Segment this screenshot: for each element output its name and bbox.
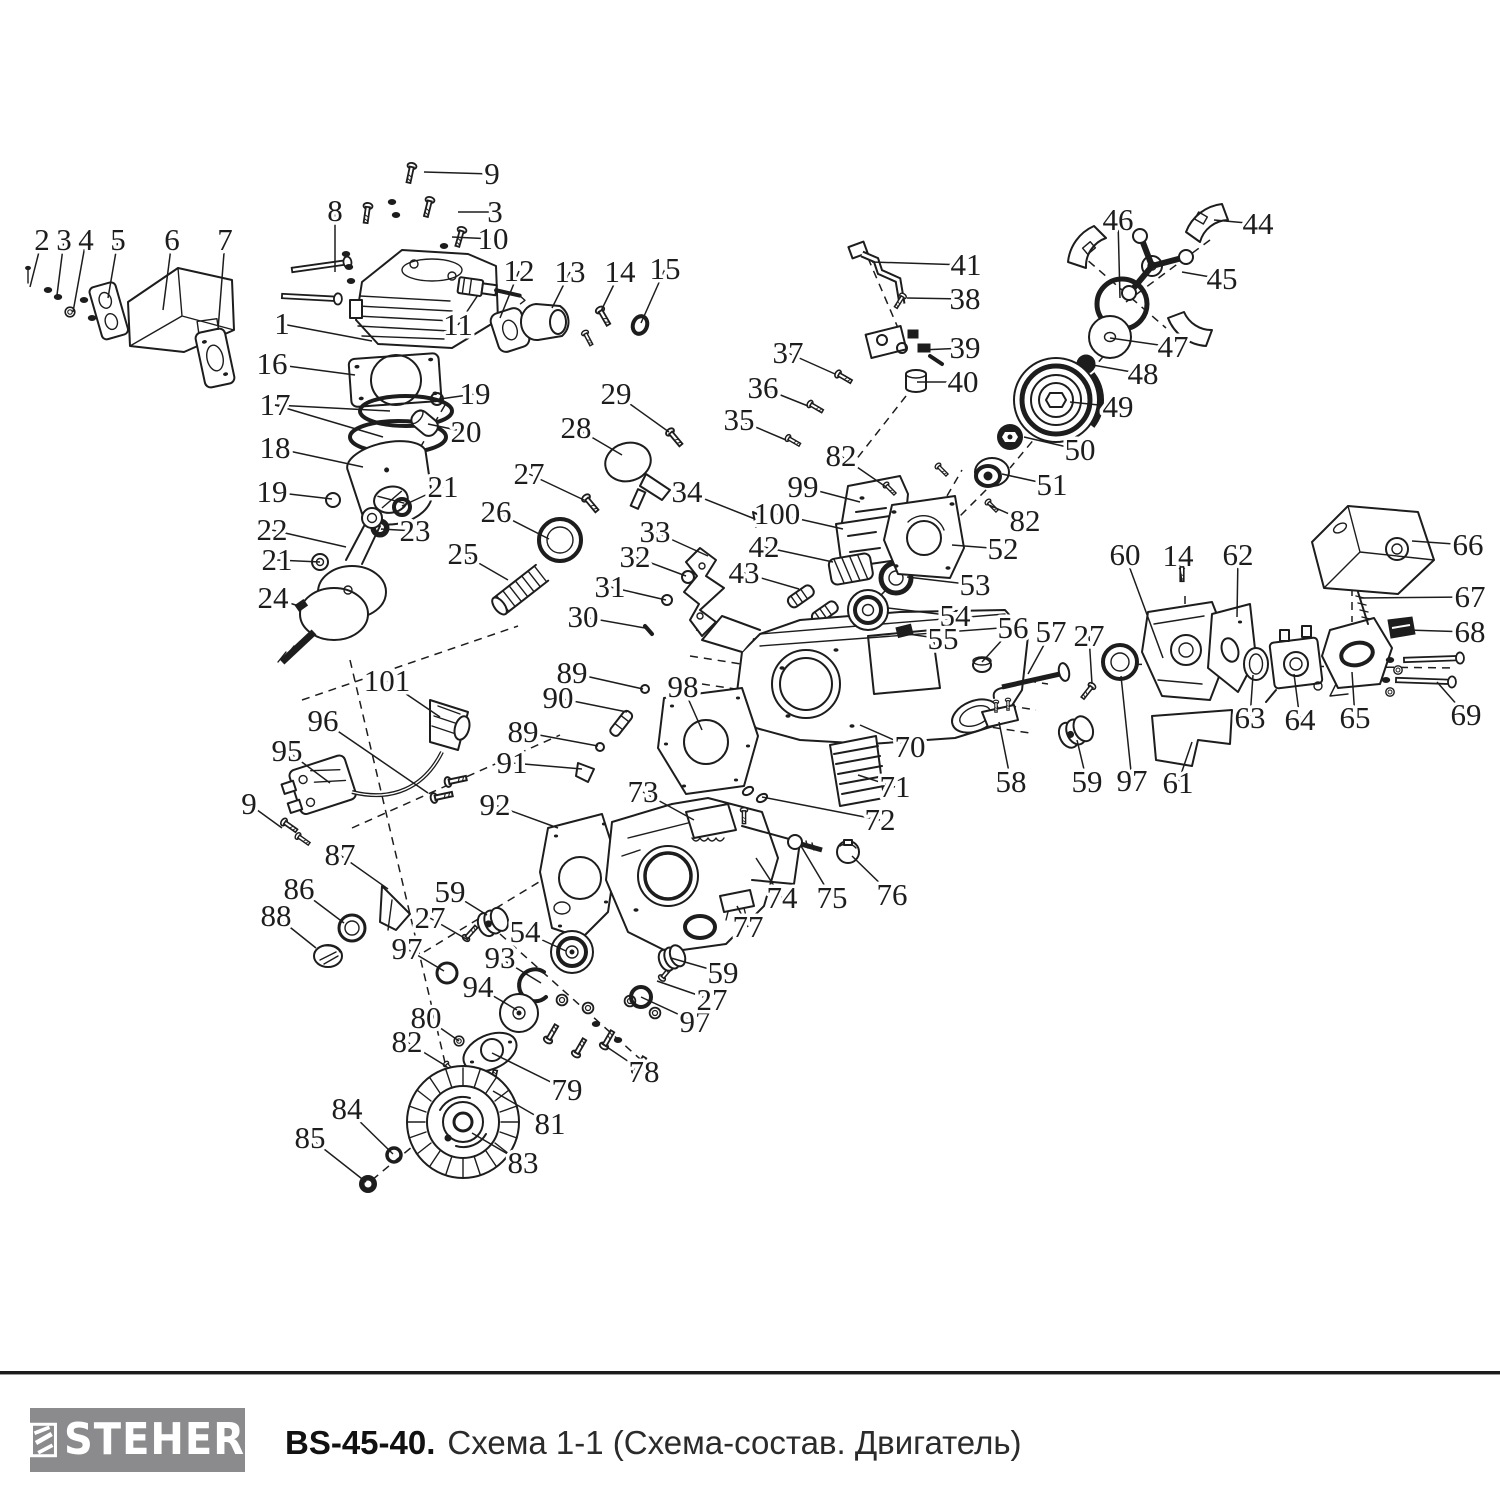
circlip-drawing (326, 493, 340, 507)
part-number-label: 13 (555, 254, 586, 289)
part-number-label: 70 (895, 729, 926, 764)
carb-bracket-drawing (866, 326, 942, 364)
part-number-label: 6 (164, 222, 180, 257)
clutch-nut-drawing (997, 424, 1023, 450)
part-number-label: 33 (640, 514, 671, 549)
seal-washer-drawing (630, 314, 649, 336)
air-filter-drawing (1312, 506, 1434, 594)
part-number-label: 94 (463, 969, 495, 1004)
parts-diagram-page: 2345678931011112131415161718191920212223… (0, 0, 1500, 1500)
part-number-label: 48 (1128, 356, 1159, 391)
thrust-washer-drawing (500, 994, 538, 1032)
dashed-line (1126, 240, 1210, 302)
main-bearing-drawing (848, 590, 888, 630)
part-number-label: 28 (561, 410, 592, 445)
grip-ribbed-drawing (830, 736, 884, 806)
pawl-spring-drawing (682, 571, 694, 583)
part-number-label: 40 (948, 364, 979, 399)
oil-seal-ring-drawing (1103, 645, 1137, 679)
part-number-label: 81 (535, 1106, 566, 1141)
part-number-label: 95 (272, 733, 303, 768)
part-number-label: 100 (754, 496, 801, 531)
steher-logo-icon (30, 1417, 57, 1463)
part-number-label: 62 (1223, 537, 1254, 572)
crankshaft-drawing (278, 508, 386, 662)
oil-pickup-drawing (788, 835, 822, 850)
part-number-label: 21 (262, 542, 293, 577)
intake-screw-drawing (595, 305, 613, 327)
part-number-label: 97 (1117, 763, 1148, 798)
part-number-label: 15 (650, 251, 681, 286)
dashed-line (868, 258, 898, 328)
part-number-label: 4 (78, 222, 94, 257)
part-number-label: 18 (260, 430, 291, 465)
pulley-drawing (1055, 713, 1097, 751)
mount-bolts-drawing (784, 369, 853, 448)
part-number-label: 74 (767, 880, 799, 915)
leader-line (424, 172, 492, 174)
pulley-screw-drawing (461, 924, 479, 943)
part-number-label: 52 (988, 531, 1019, 566)
footer-divider (0, 1371, 1500, 1375)
part-number-label: 30 (568, 599, 599, 634)
part-number-label: 71 (880, 769, 911, 804)
clutch-washer-drawing (1089, 316, 1131, 358)
part-number-label: 9 (241, 786, 257, 821)
part-number-label: 61 (1163, 765, 1194, 800)
oiler-screw-drawing (581, 493, 601, 514)
leader-line (1360, 597, 1470, 598)
wrist-pin-drawing (408, 407, 441, 439)
part-number-label: 2 (34, 222, 50, 257)
part-number-label: 20 (451, 414, 482, 449)
part-number-label: 63 (1235, 700, 1266, 735)
part-number-label: 59 (1072, 764, 1103, 799)
part-number-label: 37 (773, 335, 804, 370)
exhaust-gasket-drawing (195, 327, 236, 388)
side-gasket-drawing (540, 814, 616, 938)
exploded-view-diagram: 2345678931011112131415161718191920212223… (0, 0, 1500, 1371)
part-number-label: 60 (1110, 537, 1141, 572)
part-number-label: 7 (217, 222, 233, 257)
baffle-plate-drawing (1152, 710, 1232, 766)
diagram-title: BS-45-40. Схема 1-1 (Схема-состав. Двига… (285, 1418, 1022, 1468)
part-number-label: 76 (877, 877, 908, 912)
cylinder-bolts-drawing (282, 256, 352, 305)
part-number-label: 53 (960, 567, 991, 602)
part-number-label: 45 (1207, 261, 1238, 296)
oil-seal-drawing (539, 519, 581, 561)
part-number-label: 68 (1455, 614, 1486, 649)
part-number-label: 66 (1453, 527, 1484, 562)
part-number-label: 46 (1103, 202, 1134, 237)
part-number-label: 49 (1103, 389, 1134, 424)
oiler-screw-drawing (665, 427, 685, 448)
part-number-label: 77 (733, 909, 764, 944)
pawl-pin-drawing (645, 626, 652, 634)
part-number-label: 27 (415, 900, 446, 935)
choke-bushing-drawing (973, 657, 991, 672)
clutch-cover-drawing (884, 496, 964, 578)
spacer-bushing-drawing (906, 370, 926, 392)
carburetor-drawing (1266, 626, 1323, 702)
part-number-label: 5 (110, 222, 126, 257)
brand-logo: STEHER (30, 1408, 245, 1472)
part-number-label: 27 (514, 456, 545, 491)
grommet-washer-drawing (339, 915, 365, 941)
flywheel-drawing (407, 1066, 519, 1178)
carb-flange-drawing (1244, 648, 1268, 680)
part-number-label: 36 (748, 370, 779, 405)
case-small-parts-drawing (576, 685, 649, 782)
part-number-label: 83 (508, 1145, 539, 1180)
part-number-label: 92 (480, 787, 511, 822)
part-number-label: 38 (950, 281, 981, 316)
part-number-label: 16 (257, 346, 288, 381)
cap-drawing (314, 945, 342, 967)
part-number-label: 43 (729, 555, 760, 590)
part-number-label: 97 (392, 931, 423, 966)
part-number-label: 65 (1340, 700, 1371, 735)
dashed-line (848, 396, 906, 470)
throttle-rod-drawing (848, 242, 902, 304)
part-number-label: 8 (327, 193, 343, 228)
part-number-label: 73 (628, 774, 659, 809)
part-number-label: 26 (481, 494, 512, 529)
part-number-label: 29 (601, 376, 632, 411)
part-number-label: 85 (295, 1120, 326, 1155)
part-number-label: 27 (1074, 618, 1105, 653)
part-number-label: 44 (1243, 206, 1275, 241)
part-number-label: 41 (951, 247, 982, 282)
part-number-label: 55 (928, 621, 959, 656)
part-number-label: 23 (400, 513, 431, 548)
part-number-label: 90 (543, 680, 574, 715)
scheme-name: Схема 1-1 (Схема-состав. Двигатель) (447, 1424, 1021, 1462)
part-number-label: 88 (261, 898, 292, 933)
part-number-label: 50 (1065, 432, 1096, 467)
brand-logo-text: STEHER (64, 1415, 245, 1465)
part-number-label: 12 (504, 253, 535, 288)
ball-bearing-drawing (551, 931, 593, 973)
part-number-label: 39 (950, 330, 981, 365)
part-number-label: 51 (1037, 467, 1068, 502)
part-number-label: 14 (1163, 538, 1195, 573)
part-number-label: 10 (478, 221, 509, 256)
clutch-spider-drawing (1122, 229, 1193, 300)
part-number-label: 96 (308, 703, 339, 738)
part-number-label: 3 (56, 222, 72, 257)
muffler-small-fasteners-drawing (25, 266, 96, 321)
cover-screw-drawing (1079, 681, 1096, 700)
part-number-label: 82 (392, 1024, 423, 1059)
part-number-label: 21 (428, 469, 459, 504)
part-number-label: 59 (708, 955, 739, 990)
part-number-label: 9 (484, 156, 500, 191)
intake-elbow-drawing (521, 304, 595, 347)
part-number-label: 82 (826, 438, 857, 473)
part-number-label: 19 (460, 376, 491, 411)
part-number-label: 11 (443, 307, 473, 342)
part-number-label: 72 (865, 802, 896, 837)
part-number-label: 101 (364, 663, 411, 698)
part-number-label: 84 (332, 1091, 364, 1126)
part-number-label: 79 (552, 1072, 583, 1107)
part-number-label: 35 (724, 402, 755, 437)
model-number: BS-45-40. (285, 1424, 435, 1462)
part-number-label: 14 (605, 254, 637, 289)
part-number-label: 1 (274, 306, 290, 341)
oil-worm-spring-drawing (489, 565, 548, 617)
part-number-label: 34 (672, 474, 704, 509)
part-number-label: 64 (1285, 702, 1317, 737)
part-number-label: 89 (508, 714, 539, 749)
part-number-label: 75 (817, 880, 848, 915)
part-number-label: 57 (1036, 614, 1067, 649)
part-number-label: 56 (998, 610, 1029, 645)
retainer-ring-drawing (437, 963, 457, 983)
pump-pins-drawing (741, 785, 768, 804)
part-number-label: 19 (257, 474, 288, 509)
part-number-label: 67 (1455, 579, 1486, 614)
bracket-screw-drawing (893, 292, 908, 309)
part-number-label: 98 (668, 669, 699, 704)
part-number-label: 31 (595, 569, 626, 604)
part-number-label: 87 (325, 837, 356, 872)
part-number-label: 91 (497, 745, 528, 780)
bearing-cup-drawing (975, 458, 1009, 486)
intake-manifold-drawing (1322, 618, 1392, 696)
part-number-label: 58 (996, 764, 1027, 799)
part-number-label: 47 (1158, 329, 1189, 364)
long-bolts-drawing (1382, 652, 1464, 696)
part-number-label: 78 (629, 1054, 660, 1089)
part-number-label: 69 (1451, 697, 1482, 732)
part-number-label: 24 (258, 580, 290, 615)
part-number-label: 17 (260, 387, 291, 422)
filter-clip-drawing (1388, 617, 1415, 638)
tension-spring-drawing (828, 553, 874, 586)
part-number-label: 25 (448, 536, 479, 571)
